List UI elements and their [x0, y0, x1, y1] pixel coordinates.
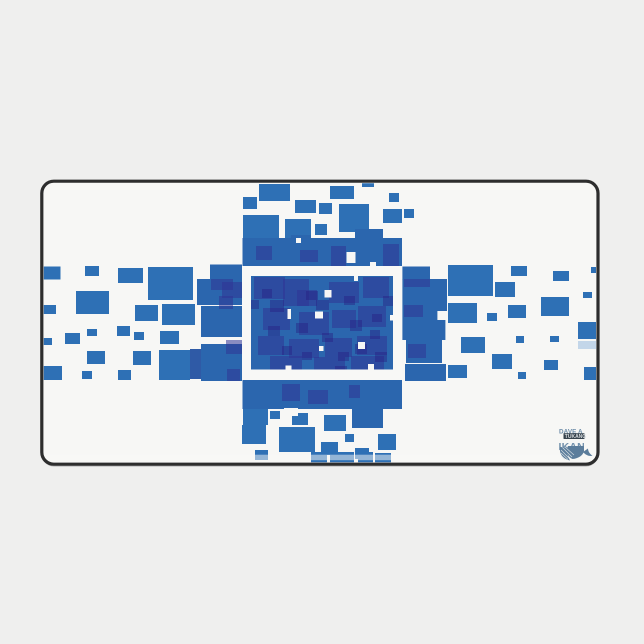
svg-text:TUKANG: TUKANG: [565, 434, 586, 440]
